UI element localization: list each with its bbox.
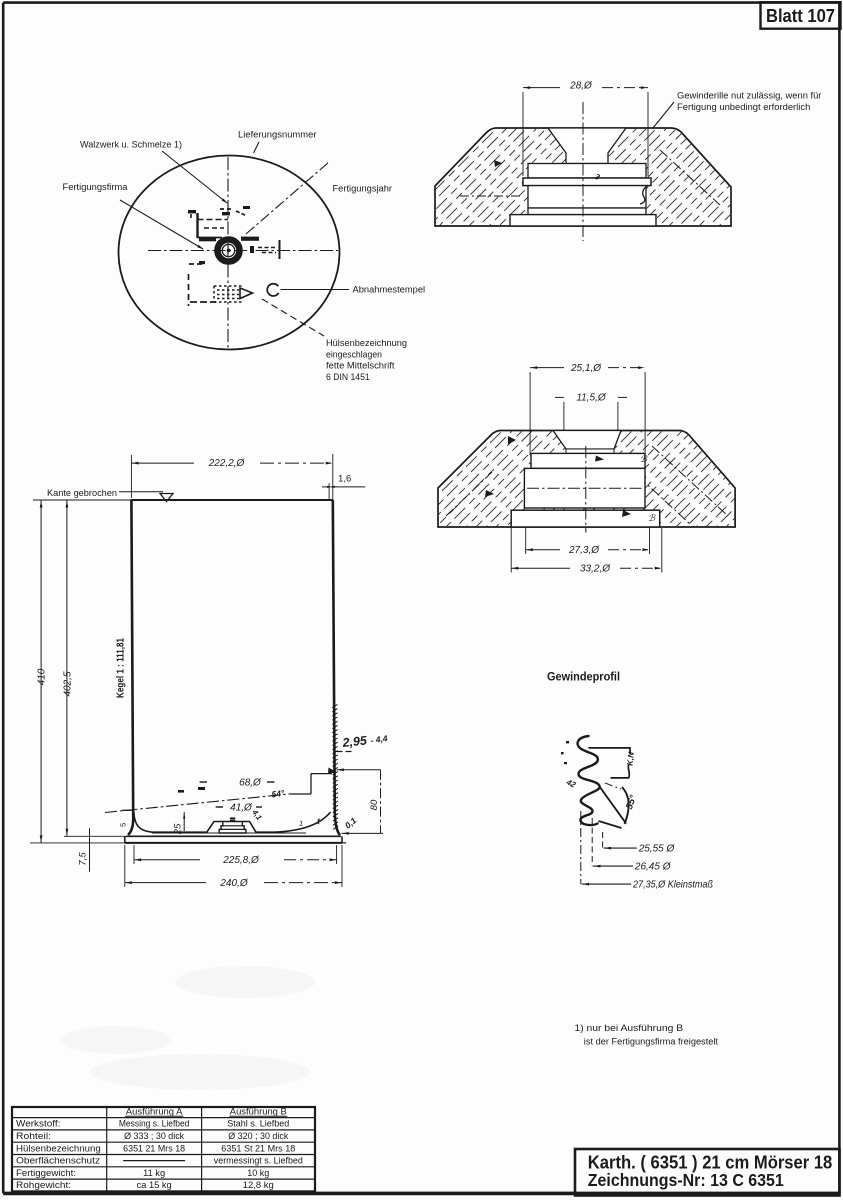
svg-text:1,6: 1,6 [338,474,351,485]
svg-text:Fertigung unbedingt erforderli: Fertigung unbedingt erforderlich [677,102,810,113]
svg-text:80: 80 [369,799,380,810]
svg-text:Rohteil:: Rohteil: [16,1131,51,1142]
svg-text:25,55 Ø: 25,55 Ø [638,843,676,854]
svg-text:402,5: 402,5 [62,671,73,696]
svg-text:K,N: K,N [626,751,636,766]
svg-text:Oberflächenschutz: Oberflächenschutz [16,1156,100,1167]
svg-text:Lieferungsnummer: Lieferungsnummer [238,130,317,141]
svg-text:6351 21 Mrs 18: 6351 21 Mrs 18 [123,1143,185,1154]
svg-text:Zeichnungs-Nr: 13 C 6351: Zeichnungs-Nr: 13 C 6351 [588,1170,784,1190]
svg-text:eingeschlagen: eingeschlagen [326,349,382,360]
svg-text:Ø 333 ; 30 dick: Ø 333 ; 30 dick [124,1131,184,1142]
svg-text:33,2,Ø: 33,2,Ø [580,563,611,574]
svg-text:Gewinderille nut zulässig, wen: Gewinderille nut zulässig, wenn für [677,91,822,102]
svg-text:Blatt 107: Blatt 107 [766,6,835,26]
svg-text:vermessingt s. Liefbed: vermessingt s. Liefbed [214,1156,303,1167]
svg-text:410: 410 [37,668,48,685]
svg-text:41,Ø: 41,Ø [230,802,253,813]
svg-text:ist der Fertigungsfirma freige: ist der Fertigungsfirma freigestelt [584,1037,719,1048]
svg-text:Hülsenbezeichnung: Hülsenbezeichnung [16,1143,101,1154]
svg-text:7,5: 7,5 [78,852,89,866]
svg-text:12,8 kg: 12,8 kg [243,1180,274,1191]
svg-text:222,2,Ø: 222,2,Ø [208,458,246,469]
svg-text:Fertigungsjahr: Fertigungsjahr [333,184,393,195]
svg-text:Fertiggewicht:: Fertiggewicht: [16,1168,76,1179]
svg-text:240,Ø: 240,Ø [219,878,248,889]
svg-text:Kegel 1 : 111,81: Kegel 1 : 111,81 [116,638,127,698]
svg-text:2,95: 2,95 [341,733,369,750]
svg-text:Kante gebrochen: Kante gebrochen [47,488,117,499]
svg-text:28,Ø: 28,Ø [569,81,593,92]
svg-text:1) nur bei Ausführung B: 1) nur bei Ausführung B [575,1023,684,1034]
svg-text:fette Mittelschrift: fette Mittelschrift [326,361,395,372]
svg-text:11 kg: 11 kg [143,1168,165,1179]
svg-text:54°: 54° [271,788,286,800]
svg-text:Messing s. Liefbed: Messing s. Liefbed [119,1119,190,1130]
svg-text:5: 5 [119,823,128,827]
svg-text:Gewindeprofil: Gewindeprofil [547,670,620,684]
svg-text:Fertigungsfirma: Fertigungsfirma [63,182,129,193]
svg-text:26,45 Ø: 26,45 Ø [634,861,672,872]
svg-text:Hülsenbezeichnung: Hülsenbezeichnung [326,338,407,349]
svg-text:Rohgewicht:: Rohgewicht: [16,1180,71,1191]
svg-text:11,5,Ø: 11,5,Ø [576,393,606,404]
svg-text:Ø 320 ; 30 dick: Ø 320 ; 30 dick [228,1131,288,1142]
svg-text:1: 1 [299,819,303,828]
svg-text:ℬ: ℬ [640,454,648,464]
svg-text:27,35,Ø Kleinstmaß: 27,35,Ø Kleinstmaß [632,879,713,890]
svg-text:Abnahmestempel: Abnahmestempel [353,285,426,296]
svg-text:Werkstoff:: Werkstoff: [16,1119,60,1130]
svg-text:10 kg: 10 kg [247,1168,269,1179]
svg-text:ℬ: ℬ [648,513,656,523]
svg-text:225,8,Ø: 225,8,Ø [222,855,260,866]
svg-text:25,1,Ø: 25,1,Ø [570,363,602,374]
svg-text:Walzwerk u. Schmelze 1): Walzwerk u. Schmelze 1) [80,140,182,151]
svg-text:6 DIN 1451: 6 DIN 1451 [326,372,370,383]
svg-text:6351 St 21 Mrs 18: 6351 St 21 Mrs 18 [221,1143,295,1154]
svg-text:68,Ø: 68,Ø [239,778,262,789]
svg-text:Stahl s. Liefbed: Stahl s. Liefbed [227,1119,289,1130]
svg-text:27,3,Ø: 27,3,Ø [568,545,600,556]
svg-text:ca 15 kg: ca 15 kg [137,1180,172,1191]
svg-text:25: 25 [173,823,184,835]
